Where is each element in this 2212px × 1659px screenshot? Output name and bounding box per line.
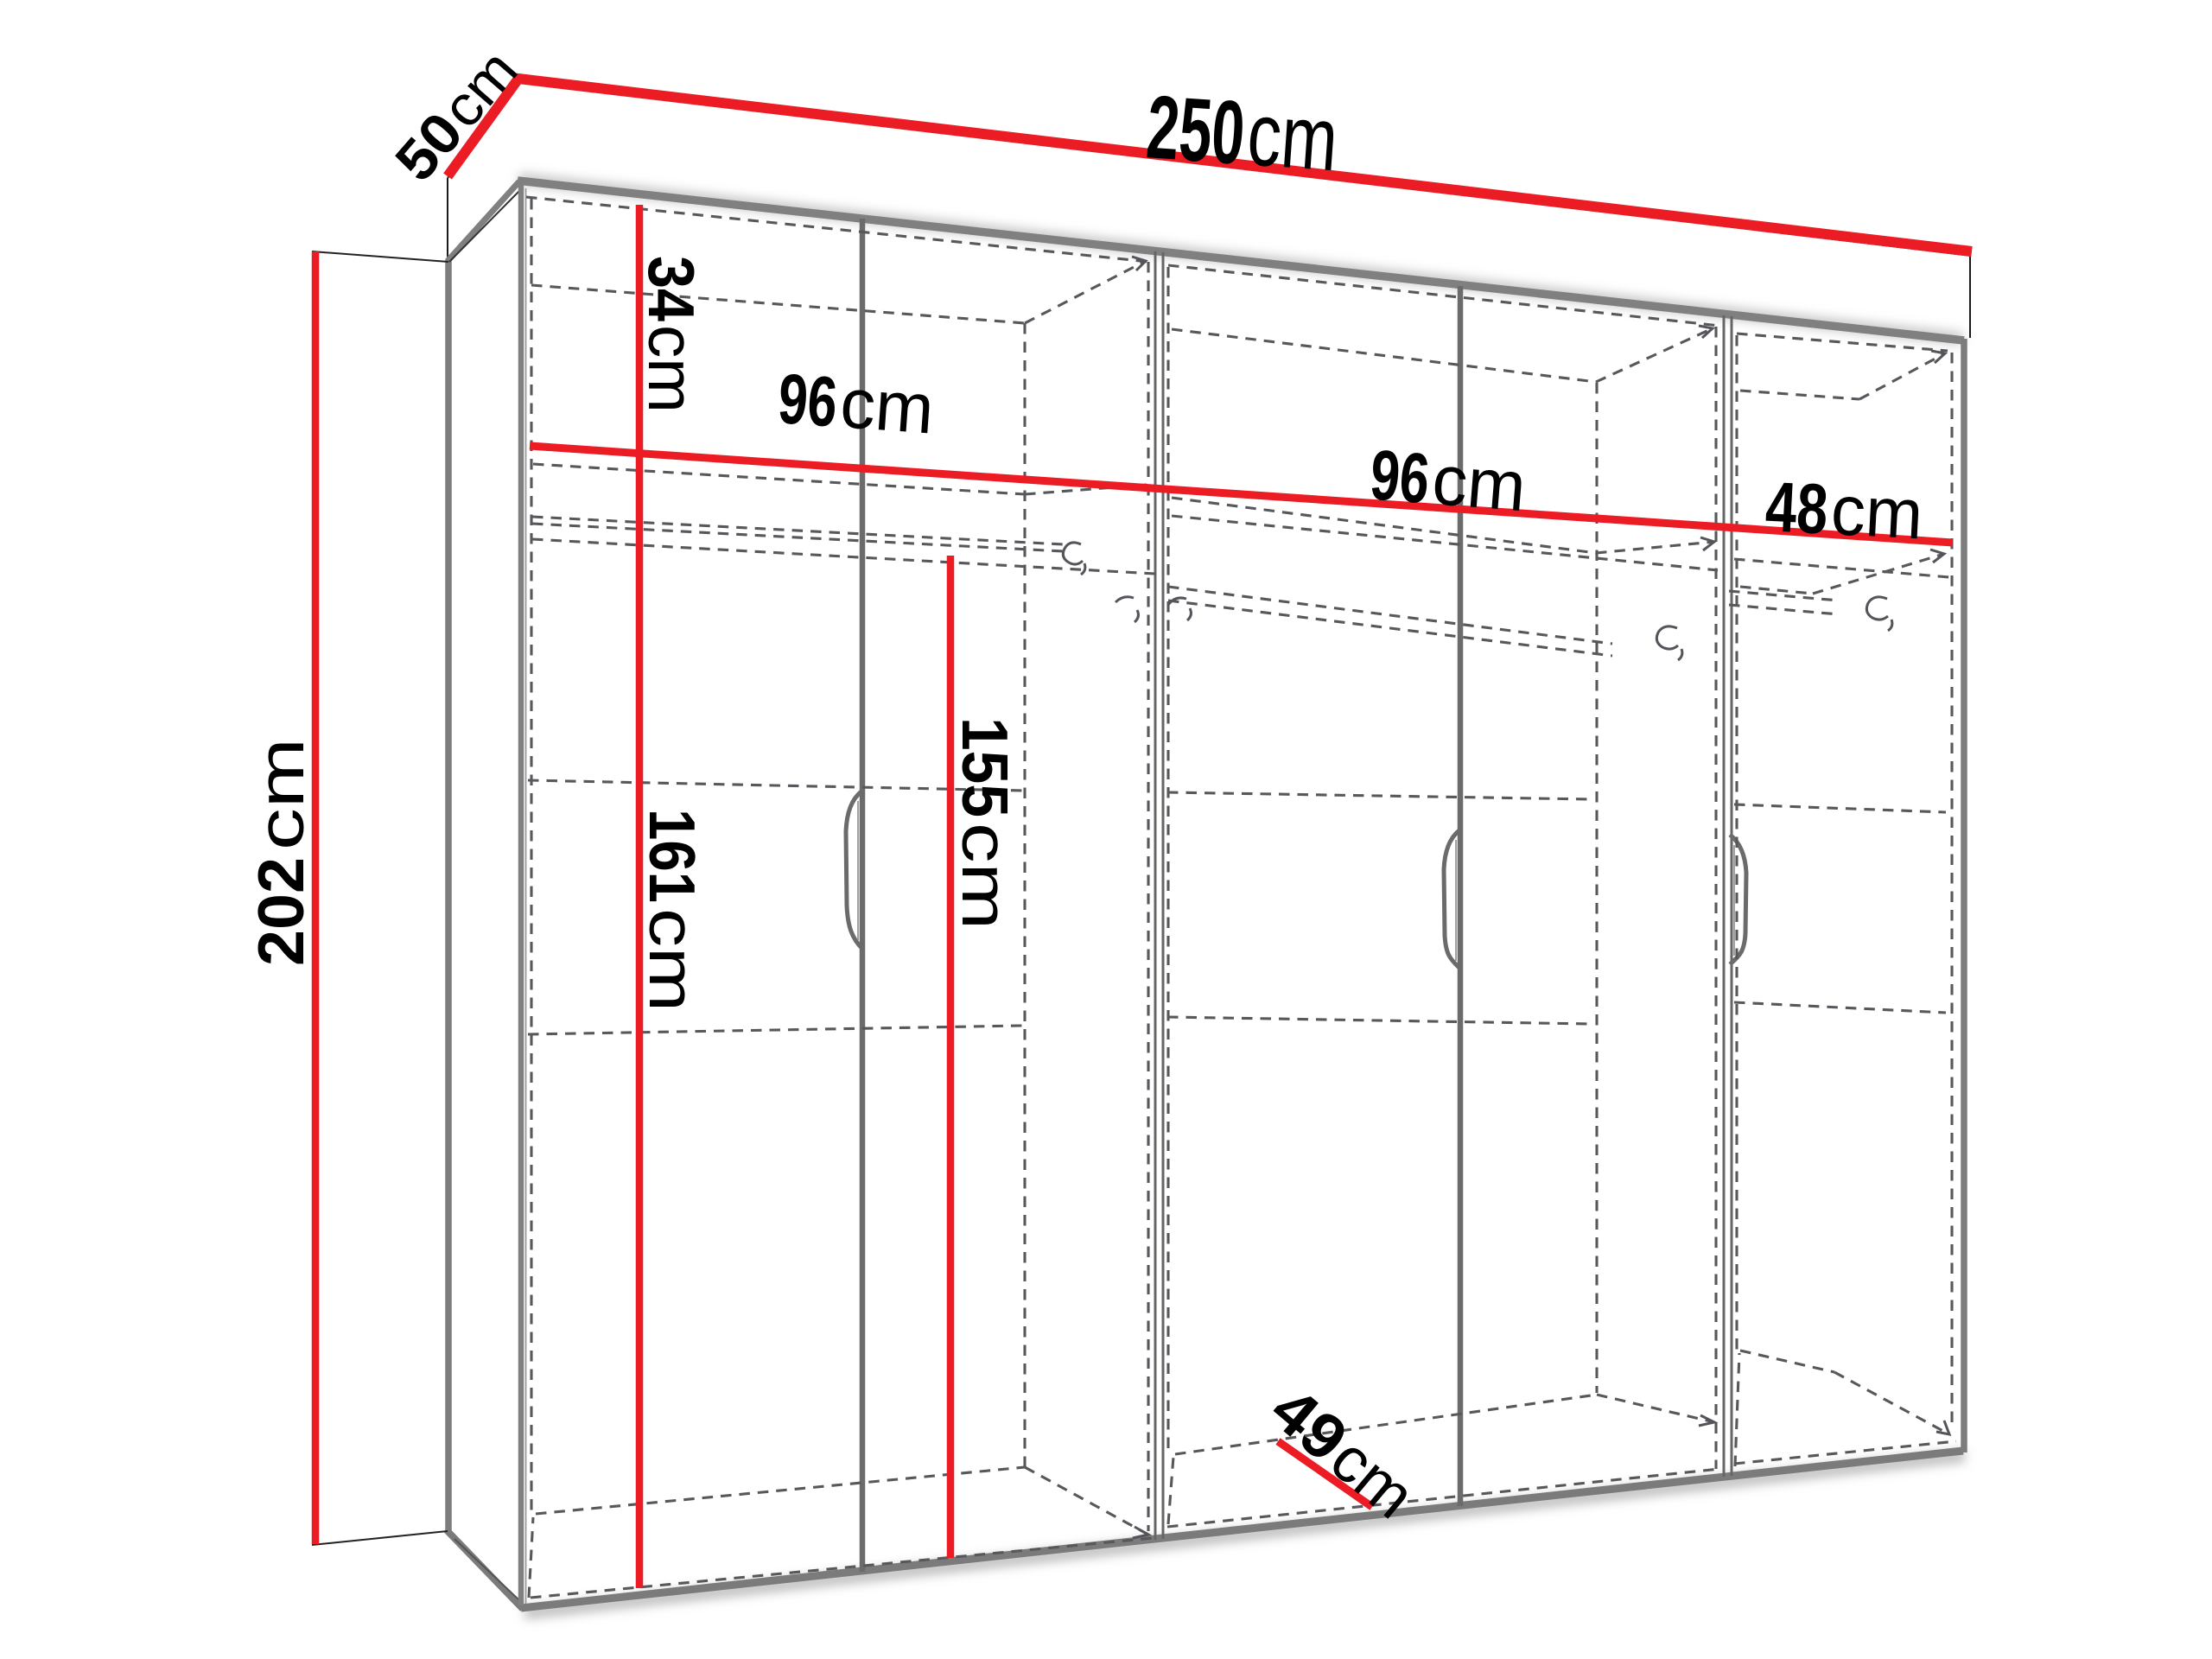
svg-text:34: 34 <box>635 256 708 321</box>
svg-text:cm: cm <box>1244 84 1341 190</box>
svg-text:155: 155 <box>949 717 1021 817</box>
svg-text:cm: cm <box>636 908 709 1012</box>
svg-text:250: 250 <box>1143 77 1248 184</box>
svg-text:cm: cm <box>635 325 708 413</box>
svg-text:96: 96 <box>1368 435 1433 518</box>
svg-text:96: 96 <box>776 359 840 442</box>
svg-text:cm: cm <box>1429 441 1529 526</box>
svg-text:cm: cm <box>245 738 317 850</box>
svg-text:cm: cm <box>838 364 937 448</box>
svg-text:cm: cm <box>949 823 1021 930</box>
svg-text:cm: cm <box>1829 471 1925 554</box>
svg-text:161: 161 <box>636 809 709 903</box>
svg-text:48: 48 <box>1764 467 1830 550</box>
svg-text:202: 202 <box>245 857 317 966</box>
